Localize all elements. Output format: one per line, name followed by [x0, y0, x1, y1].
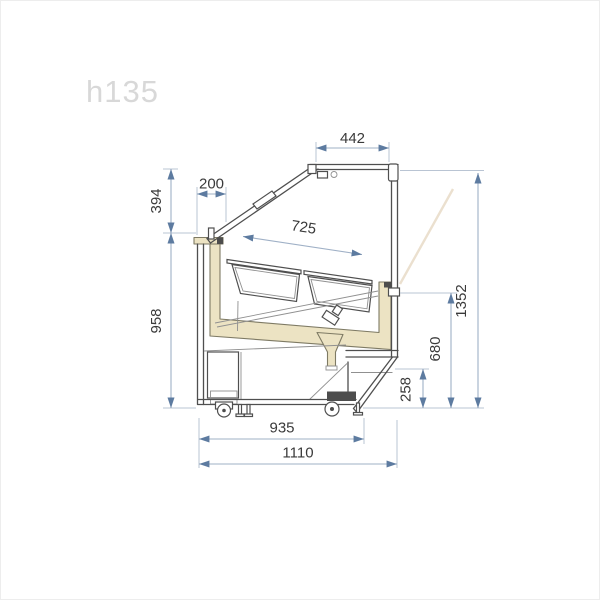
dim-label-680: 680 [427, 336, 444, 361]
glass-top-joint [308, 165, 316, 174]
watermark-label: h135 [86, 74, 159, 109]
dim-label-394: 394 [148, 188, 165, 213]
tub-edge-trim [384, 282, 392, 288]
foot-right [354, 403, 363, 415]
rear-rail-fitting [389, 288, 400, 296]
top-panel [308, 164, 398, 181]
dim-label-725: 725 [290, 217, 317, 238]
drain-outlet [326, 366, 337, 370]
lamp-icon [331, 172, 337, 178]
kick-panel [354, 357, 398, 413]
dim-label-200: 200 [199, 176, 224, 193]
dimension-glass-offset: 200 [197, 176, 226, 236]
probe-bracket [322, 305, 342, 325]
lamp-fixture [318, 172, 328, 179]
tray-1 [227, 260, 301, 302]
dimension-base-height: 258 [395, 369, 429, 408]
dimension-body-height: 958 [148, 233, 196, 408]
caster-left [216, 402, 233, 417]
compressor-unit [327, 392, 356, 402]
glass-reflection-line [400, 189, 453, 284]
glass-clamp [209, 228, 215, 239]
dimension-display-width: 725 [243, 217, 362, 254]
technical-drawing-page: h135 [0, 0, 600, 600]
caster-right [325, 402, 339, 416]
drain-funnel [317, 333, 343, 367]
dimension-top-width: 442 [316, 130, 389, 162]
dimension-total-depth: 1110 [199, 420, 397, 468]
display-case-outline [194, 164, 400, 417]
dimension-upper-height: 394 [148, 169, 196, 233]
dim-label-935: 935 [269, 420, 294, 437]
dim-label-258: 258 [398, 377, 415, 402]
dim-label-442: 442 [340, 130, 365, 147]
foot-left [236, 405, 253, 417]
dim-label-1352: 1352 [453, 284, 470, 317]
dim-label-958: 958 [148, 308, 165, 333]
display-case-section-drawing: h135 [1, 1, 600, 600]
dim-label-1110: 1110 [282, 445, 313, 462]
left-wall [198, 244, 204, 405]
top-rear-cap [389, 164, 399, 181]
